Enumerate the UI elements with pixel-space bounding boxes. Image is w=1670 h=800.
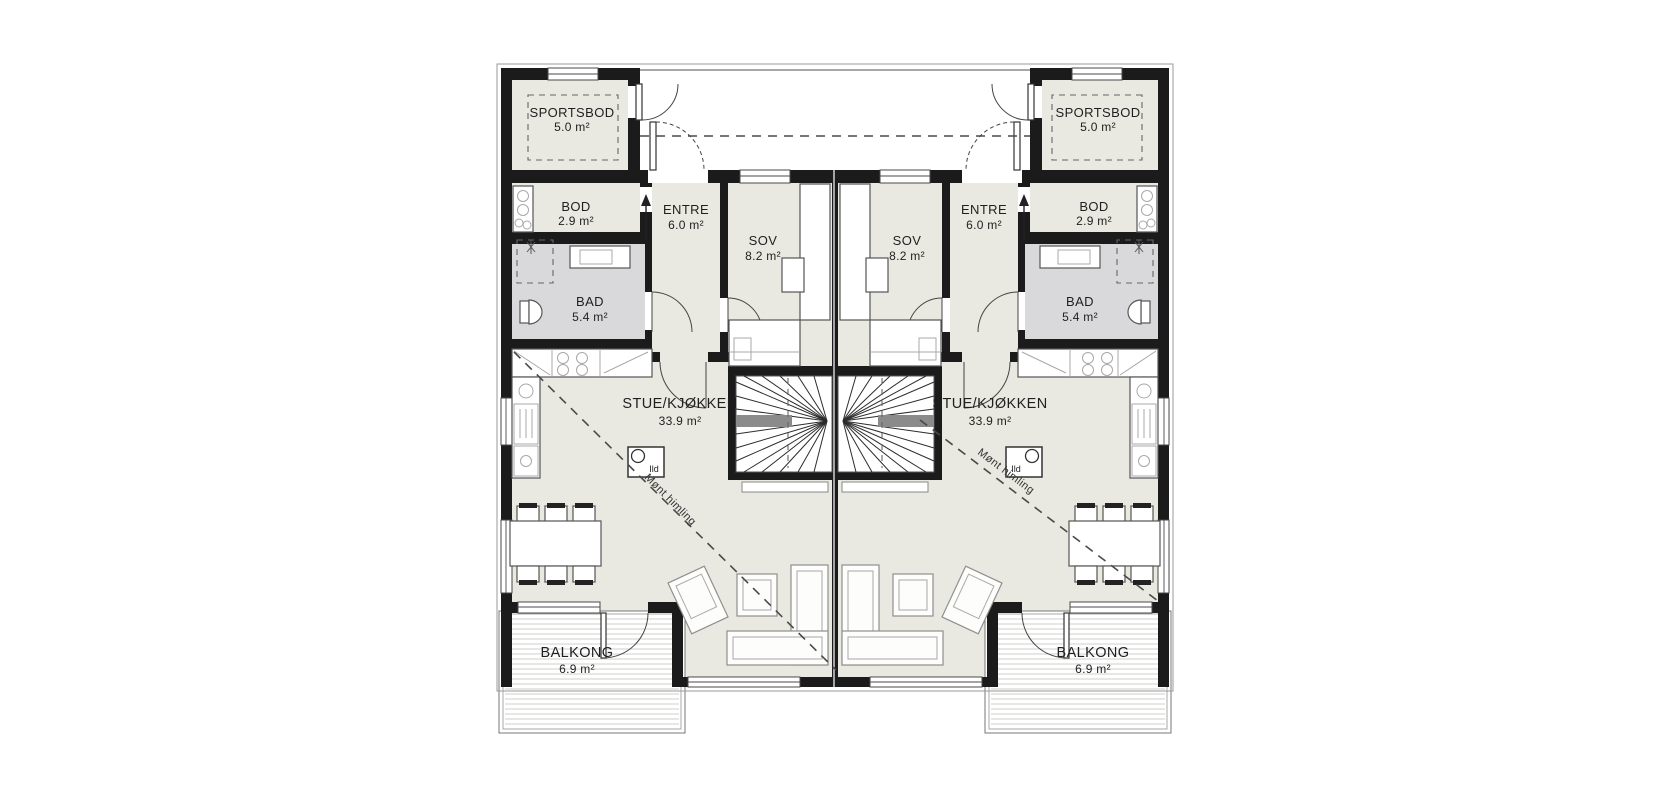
chair	[1075, 503, 1097, 522]
window	[1070, 602, 1152, 613]
room-label: SOV	[749, 233, 778, 248]
dining-table	[1069, 521, 1160, 566]
room-label: SOV	[893, 233, 922, 248]
dining-set	[1069, 503, 1160, 585]
room-label: BAD	[1066, 294, 1094, 309]
window	[740, 170, 790, 183]
window	[518, 602, 600, 613]
vanity	[1040, 246, 1100, 268]
room-label: BOD	[561, 199, 590, 214]
room-area: 5.0 m²	[1080, 120, 1116, 134]
room-area: 8.2 m²	[745, 249, 781, 263]
toilet	[520, 300, 542, 324]
chair	[1131, 503, 1153, 522]
dining-set	[510, 503, 601, 585]
room-area: 6.0 m²	[668, 218, 704, 232]
wardrobe	[840, 184, 870, 320]
room-area: 6.9 m²	[559, 662, 595, 676]
dining-table	[510, 521, 601, 566]
room-area: 5.0 m²	[554, 120, 590, 134]
chair	[517, 503, 539, 522]
room-area: 33.9 m²	[969, 414, 1012, 428]
vanity	[570, 246, 630, 268]
window	[880, 170, 930, 183]
window	[1158, 398, 1169, 445]
chair	[1103, 566, 1125, 585]
room-label: BAD	[576, 294, 604, 309]
room-label: ENTRE	[663, 202, 709, 217]
nightstand	[782, 258, 804, 292]
room-area: 33.9 m²	[659, 414, 702, 428]
room-label: BOD	[1079, 199, 1108, 214]
room-area: 2.9 m²	[1076, 214, 1112, 228]
chair	[1103, 503, 1125, 522]
room-area: 5.4 m²	[1062, 310, 1098, 324]
window	[548, 68, 598, 80]
coffee-table	[737, 574, 777, 616]
floor-plan-svg: SPORTSBOD 5.0 m² BOD 2.9 m² ENTRE 6.0 m²…	[0, 0, 1670, 800]
laundry-fixtures	[1137, 186, 1157, 232]
window	[688, 677, 800, 687]
sportsbod-door	[636, 84, 678, 120]
floor-plan: SPORTSBOD 5.0 m² BOD 2.9 m² ENTRE 6.0 m²…	[0, 0, 1670, 800]
bed	[870, 320, 941, 366]
room-area: 8.2 m²	[889, 249, 925, 263]
room-area: 2.9 m²	[558, 214, 594, 228]
room-area: 5.4 m²	[572, 310, 608, 324]
coffee-table	[893, 574, 933, 616]
chair	[545, 503, 567, 522]
room-label: ENTRE	[961, 202, 1007, 217]
chair	[573, 566, 595, 585]
toilet	[1128, 300, 1150, 324]
understair-niche	[842, 482, 928, 492]
understair-niche	[742, 482, 828, 492]
laundry-fixtures	[513, 186, 533, 232]
chair	[1075, 566, 1097, 585]
room-label: SPORTSBOD	[1056, 105, 1141, 120]
sportsbod-door	[992, 84, 1034, 120]
chair	[517, 566, 539, 585]
room-area: 6.9 m²	[1075, 662, 1111, 676]
room-label: BALKONG	[1057, 645, 1130, 661]
bed	[729, 320, 800, 366]
room-label: BALKONG	[541, 645, 614, 661]
chair	[1131, 566, 1153, 585]
wardrobe	[800, 184, 830, 320]
entry-door	[650, 122, 704, 170]
window	[501, 398, 512, 445]
room-area: 6.0 m²	[966, 218, 1002, 232]
chair	[545, 566, 567, 585]
window	[1072, 68, 1122, 80]
room-label: STUE/KJØKKEN	[932, 396, 1047, 412]
chair	[573, 503, 595, 522]
entry-door	[966, 122, 1020, 170]
window	[870, 677, 982, 687]
stair-landing	[736, 415, 792, 427]
nightstand	[866, 258, 888, 292]
room-label: STUE/KJØKKEN	[622, 396, 737, 412]
room-label: SPORTSBOD	[530, 105, 615, 120]
